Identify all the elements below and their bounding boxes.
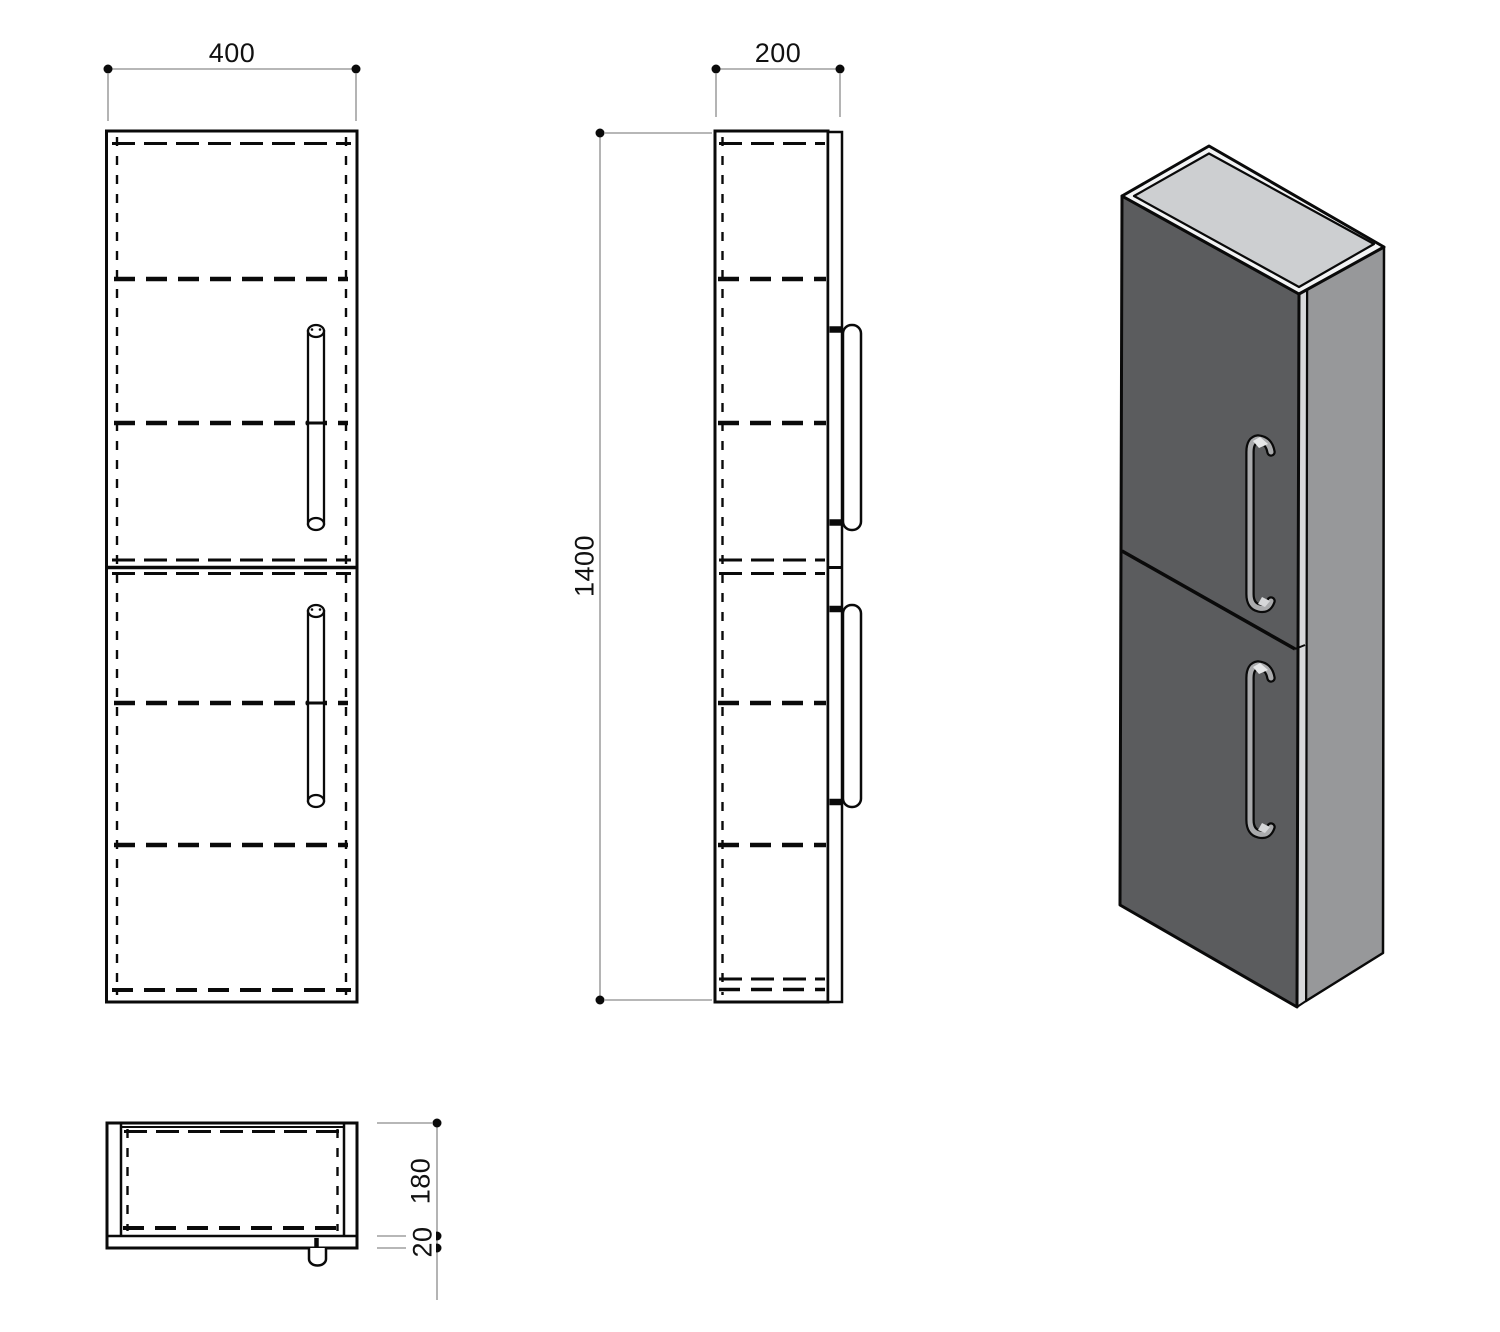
front-view (107, 131, 358, 1002)
front-handle-lower (306, 605, 327, 807)
dim-depth-value: 200 (755, 38, 802, 68)
dim-dot (104, 65, 113, 74)
bottom-view (107, 1123, 357, 1266)
iso-side-face (1306, 247, 1384, 1001)
dim-dot (596, 996, 605, 1005)
side-view-carcass (715, 131, 828, 1002)
dim-height-value: 1400 (569, 535, 599, 597)
dim-dot (596, 129, 605, 138)
dim-dot (836, 65, 845, 74)
technical-drawing-page: 400 200 1400 180 20 (0, 0, 1500, 1332)
technical-drawing-canvas: 400 200 1400 180 20 (0, 0, 1500, 1332)
front-handle-upper (306, 325, 327, 530)
dim-plinth-value: 20 (407, 1226, 437, 1257)
dim-dot (352, 65, 361, 74)
dim-dot (712, 65, 721, 74)
side-view (715, 131, 861, 1002)
isometric-view (1120, 146, 1384, 1007)
dim-width-value: 400 (209, 38, 256, 68)
dim-body-depth-value: 180 (405, 1158, 435, 1205)
dim-dot (433, 1119, 442, 1128)
